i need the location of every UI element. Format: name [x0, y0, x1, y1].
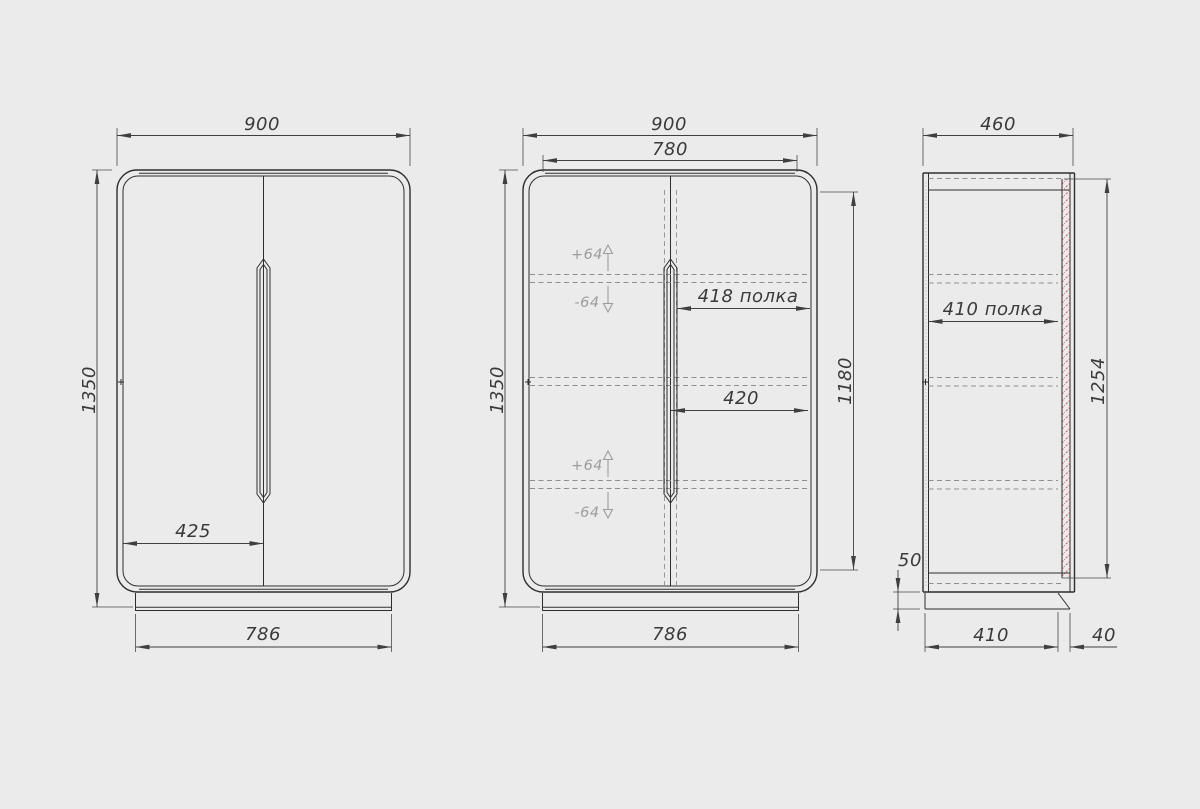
dim-depth-460: 460: [980, 114, 1016, 135]
dim-height-1350: 1350: [487, 366, 508, 414]
front-internal-view: +64 -64 +64 -64 900 780 1350 1180: [487, 114, 858, 652]
dim-opening-780: 780: [652, 139, 688, 160]
ext-lines-50: [893, 592, 920, 609]
shelf-1-hidden-line: [929, 275, 1059, 284]
adjust-up-label: +64: [571, 458, 603, 474]
up-arrow-icon: [604, 245, 613, 254]
adjust-down-label: -64: [574, 505, 599, 521]
dim-height-1350: 1350: [79, 366, 100, 414]
back-panel-hatch: [1062, 179, 1070, 578]
dim-half-420: 420: [723, 388, 759, 409]
shelf-2-hidden-line: [929, 378, 1059, 387]
technical-drawing: 900 1350 425 786 +64: [0, 0, 1200, 809]
up-arrow-icon: [604, 451, 613, 460]
shelf-3-hidden-line: [929, 481, 1059, 490]
dim-base-410: 410: [973, 625, 1009, 646]
dim-plinth-50: 50: [898, 550, 922, 571]
drawing-canvas: 900 1350 425 786 +64: [0, 0, 1200, 809]
front-view: 900 1350 425 786: [79, 114, 410, 652]
dim-width-900: 900: [651, 114, 687, 135]
shelf-1-adjust: +64 -64: [571, 245, 613, 312]
dim-base-786: 786: [652, 624, 688, 645]
adjust-down-label: -64: [574, 295, 599, 311]
side-view: 460 410 полка 1254 50 410 40: [893, 114, 1117, 652]
dim-handle-425: 425: [175, 521, 211, 542]
hinge-center-mark: [525, 379, 531, 385]
plinth-base: [136, 593, 392, 611]
plinth-base: [543, 593, 799, 611]
down-arrow-icon: [604, 304, 613, 313]
down-arrow-icon: [604, 510, 613, 519]
plinth: [925, 593, 1070, 609]
adjust-up-label: +64: [571, 247, 603, 263]
dim-interior-1254: 1254: [1088, 357, 1109, 405]
dim-back-40: 40: [1092, 625, 1116, 646]
dim-shelf-418: 418 полка: [698, 286, 799, 307]
dim-shelf-410: 410 полка: [943, 299, 1044, 320]
shelf-3-adjust: +64 -64: [571, 451, 613, 521]
dim-base-786: 786: [245, 624, 281, 645]
dim-width-900: 900: [244, 114, 280, 135]
dim-interior-1180: 1180: [835, 357, 856, 405]
